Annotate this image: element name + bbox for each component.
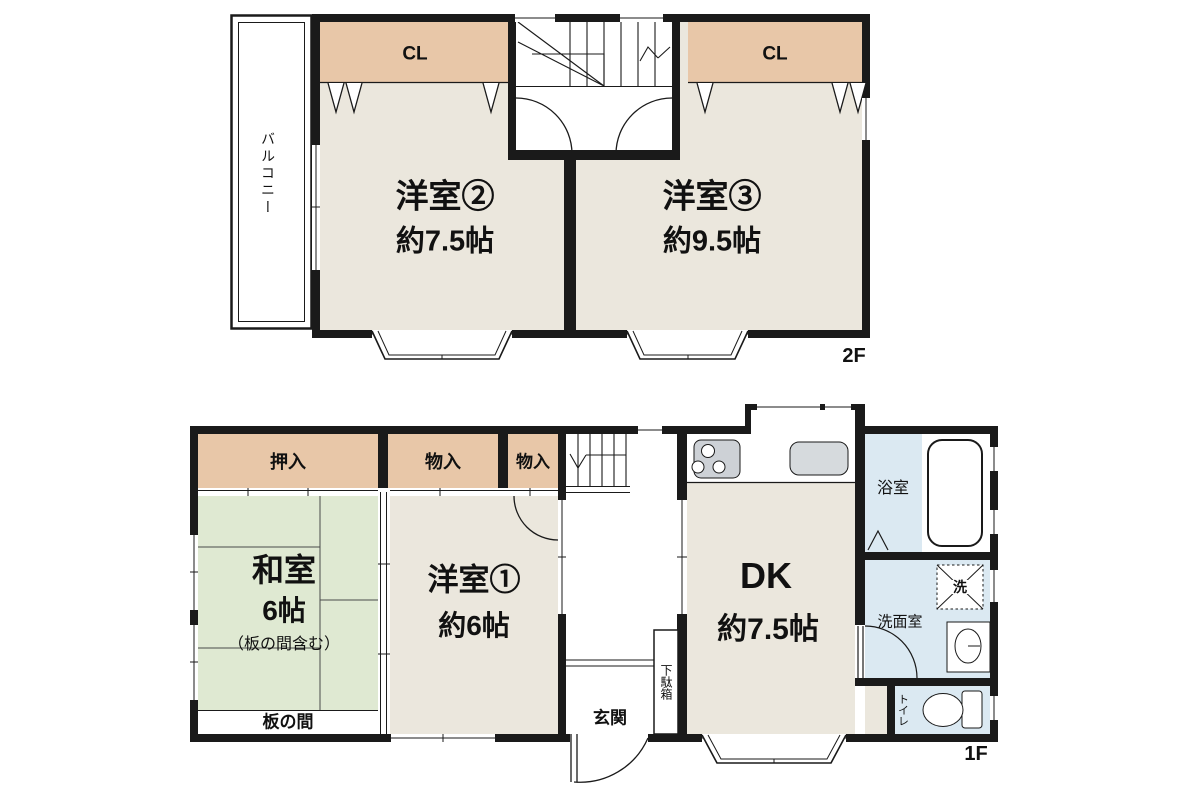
label-cl-right: CL [762, 45, 787, 64]
floorplan-1f-drawing [190, 404, 1008, 796]
bay-window-room2 [372, 330, 512, 359]
floor-2f: バルコニー CL CL 洋室② 約7.5帖 洋室③ 約9.5帖 2F [230, 14, 875, 382]
kitchen-counter [687, 434, 855, 483]
label-bath: 浴室 [877, 481, 909, 497]
label-genkan: 玄関 [593, 710, 627, 727]
label-washitsu-name: 和室 [252, 554, 316, 586]
kitchen-sink [790, 442, 848, 475]
wash-basin [947, 622, 990, 672]
window-room1-bottom [391, 734, 495, 742]
label-balcony: バルコニー [261, 132, 275, 217]
entrance-door [570, 734, 648, 782]
label-room1-size: 約6帖 [438, 612, 510, 640]
label-toilet: トイレ [897, 694, 908, 727]
staircase-2f [508, 14, 680, 160]
label-monoire-1: 物入 [425, 453, 461, 471]
label-cl-left: CL [402, 45, 427, 64]
label-washitsu-size: 6帖 [262, 597, 306, 625]
label-room1-name: 洋室① [428, 565, 521, 596]
label-oshiire: 押入 [270, 453, 306, 471]
bathtub [928, 440, 982, 546]
wall-room-divider-2f [564, 160, 576, 330]
fusuma-sliding-doors [378, 488, 390, 734]
toilet-fixture [923, 691, 982, 728]
label-getabako: 下駄箱 [660, 664, 672, 700]
label-washitsu-note: （板の間含む） [228, 637, 340, 653]
floor-1f: 押入 物入 物入 和室 6帖 （板の間含む） 板の間 洋室① 約6帖 玄関 下駄… [190, 404, 1008, 796]
label-laundry: 洗 [952, 580, 968, 594]
floorplan-2f-drawing [230, 14, 875, 382]
label-dk-size: 約7.5帖 [717, 615, 819, 645]
label-room2-size: 約7.5帖 [396, 228, 494, 257]
label-room3-name: 洋室③ [663, 180, 762, 213]
label-dk-name: DK [740, 558, 792, 594]
bay-window-room3 [627, 330, 748, 359]
label-washroom: 洗面室 [877, 615, 922, 630]
label-floor-2f: 2F [842, 346, 865, 366]
label-room2-name: 洋室② [396, 180, 495, 213]
label-monoire-2: 物入 [516, 454, 550, 471]
floorplan-canvas: バルコニー CL CL 洋室② 約7.5帖 洋室③ 約9.5帖 2F [0, 0, 1200, 796]
label-floor-1f: 1F [964, 744, 987, 764]
bay-window-dk [702, 734, 846, 763]
label-itanoma: 板の間 [263, 714, 314, 731]
label-room3-size: 約9.5帖 [663, 228, 761, 257]
